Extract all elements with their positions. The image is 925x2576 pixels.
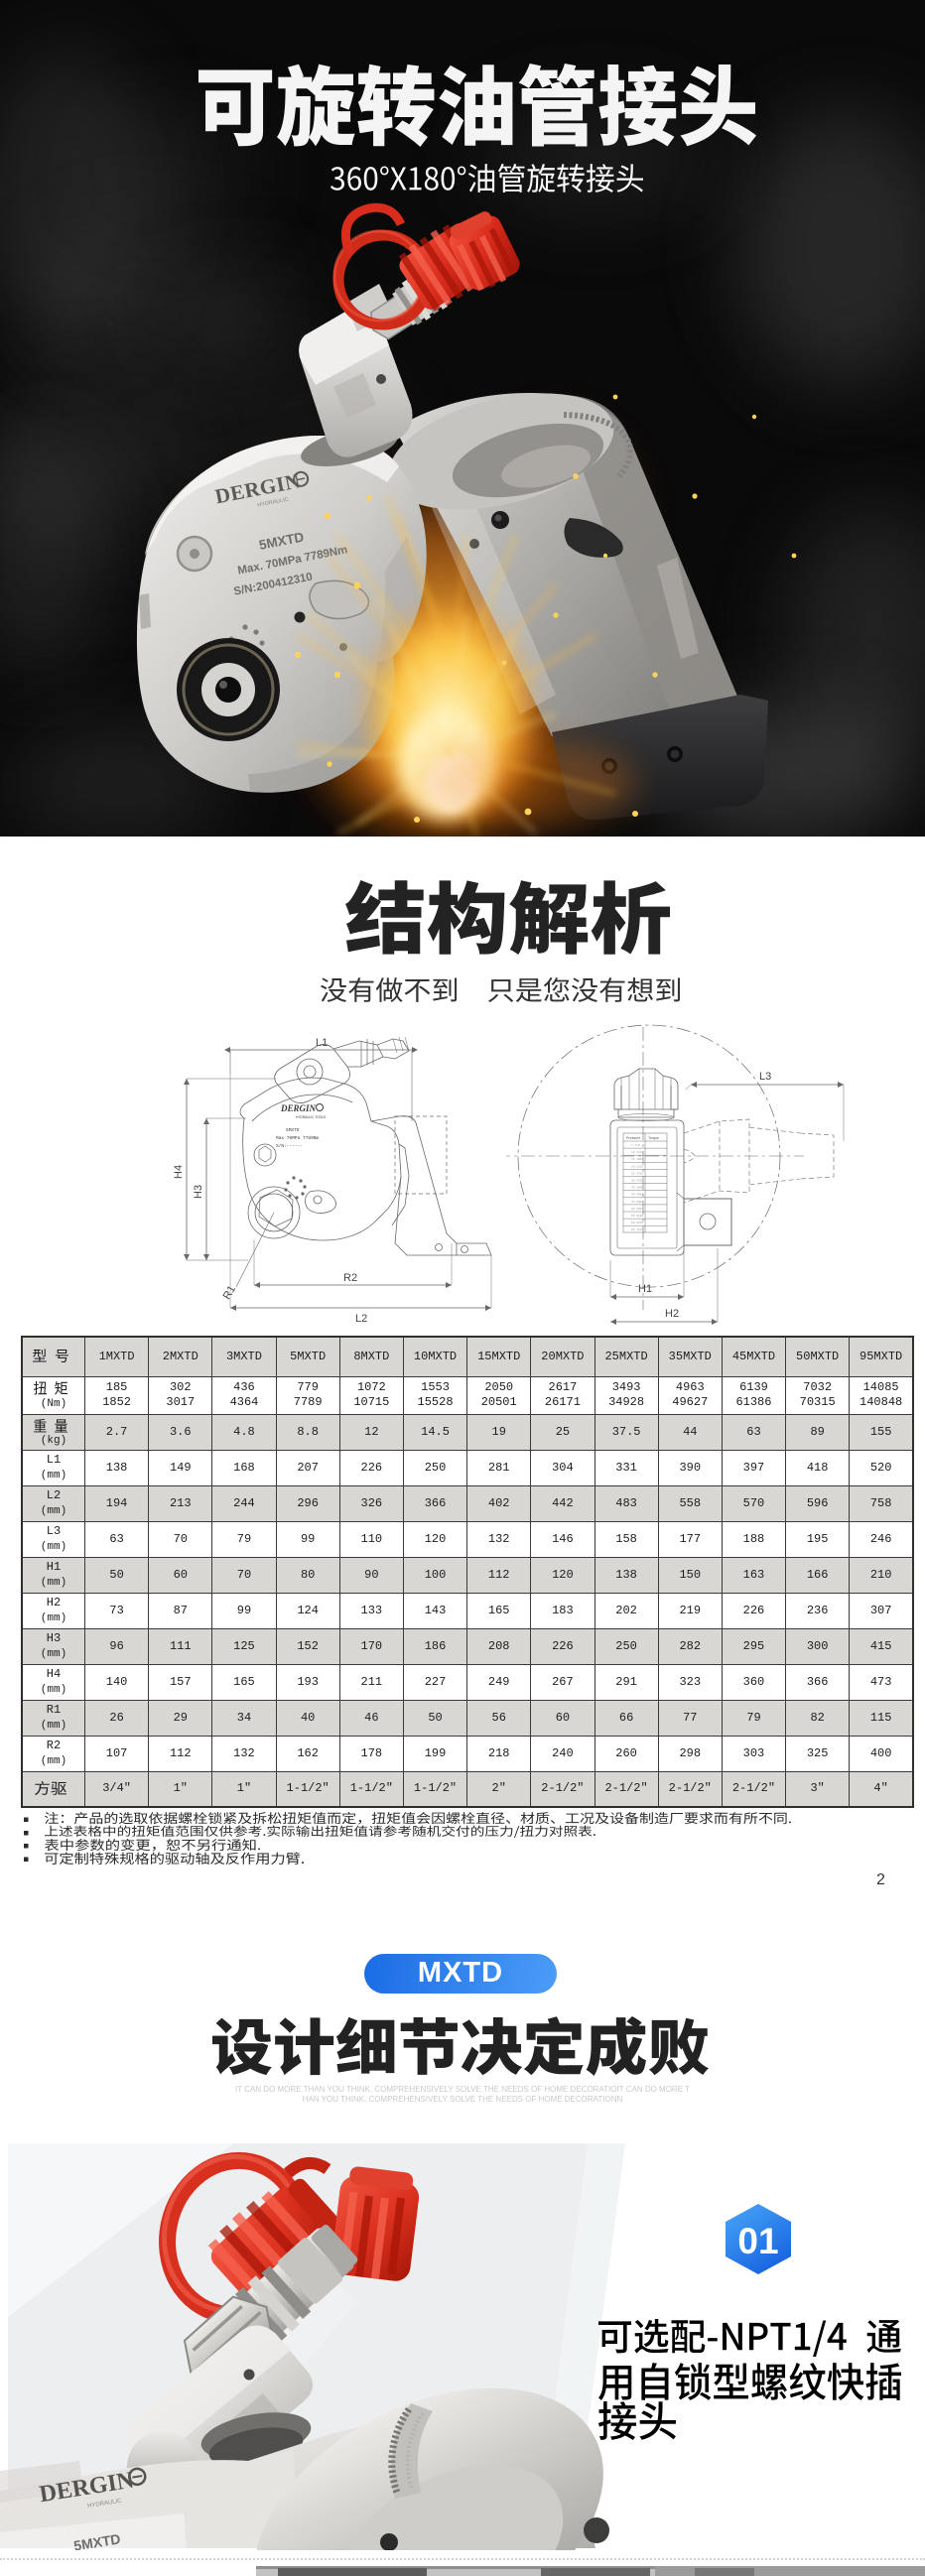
svg-text:10 1113: 10 1113 (631, 1151, 643, 1154)
svg-text:H3: H3 (193, 1185, 204, 1199)
svg-text:20 2225: 20 2225 (631, 1165, 643, 1168)
svg-text:S/N:------: S/N:------ (276, 1143, 303, 1149)
svg-text:Torque: Torque (648, 1136, 659, 1140)
svg-text:H4: H4 (173, 1165, 185, 1179)
svg-text:01: 01 (737, 2221, 778, 2261)
svg-text:40 4451: 40 4451 (631, 1194, 643, 1197)
svg-text:H1: H1 (638, 1283, 652, 1295)
svg-text:45 5007: 45 5007 (631, 1201, 643, 1204)
svg-text:L3: L3 (759, 1071, 771, 1083)
svg-text:25 2782: 25 2782 (631, 1172, 643, 1175)
svg-text:50 5564: 50 5564 (631, 1208, 643, 1211)
svg-text:L2: L2 (355, 1313, 367, 1325)
svg-text:Max 70MPa 7789Nm: Max 70MPa 7789Nm (276, 1135, 320, 1141)
svg-text:30 3338: 30 3338 (631, 1180, 643, 1183)
svg-text:55 6120: 55 6120 (631, 1215, 643, 1218)
svg-text:15 1669: 15 1669 (631, 1158, 643, 1161)
svg-text:65 7233: 65 7233 (631, 1228, 643, 1231)
svg-text:35 3895: 35 3895 (631, 1187, 643, 1190)
svg-text:L1: L1 (316, 1037, 328, 1049)
svg-text:R2: R2 (343, 1272, 357, 1284)
svg-text:HYDRAULIC TOOLS: HYDRAULIC TOOLS (296, 1115, 326, 1119)
svg-text:Pressure: Pressure (626, 1136, 640, 1140)
svg-text:5MXTD: 5MXTD (286, 1127, 300, 1133)
svg-text:DERGIN: DERGIN (280, 1103, 317, 1113)
svg-text:7 779: 7 779 (631, 1144, 640, 1147)
svg-text:60 6676: 60 6676 (631, 1222, 643, 1224)
svg-text:H2: H2 (665, 1308, 679, 1320)
svg-text:R1: R1 (221, 1284, 238, 1302)
